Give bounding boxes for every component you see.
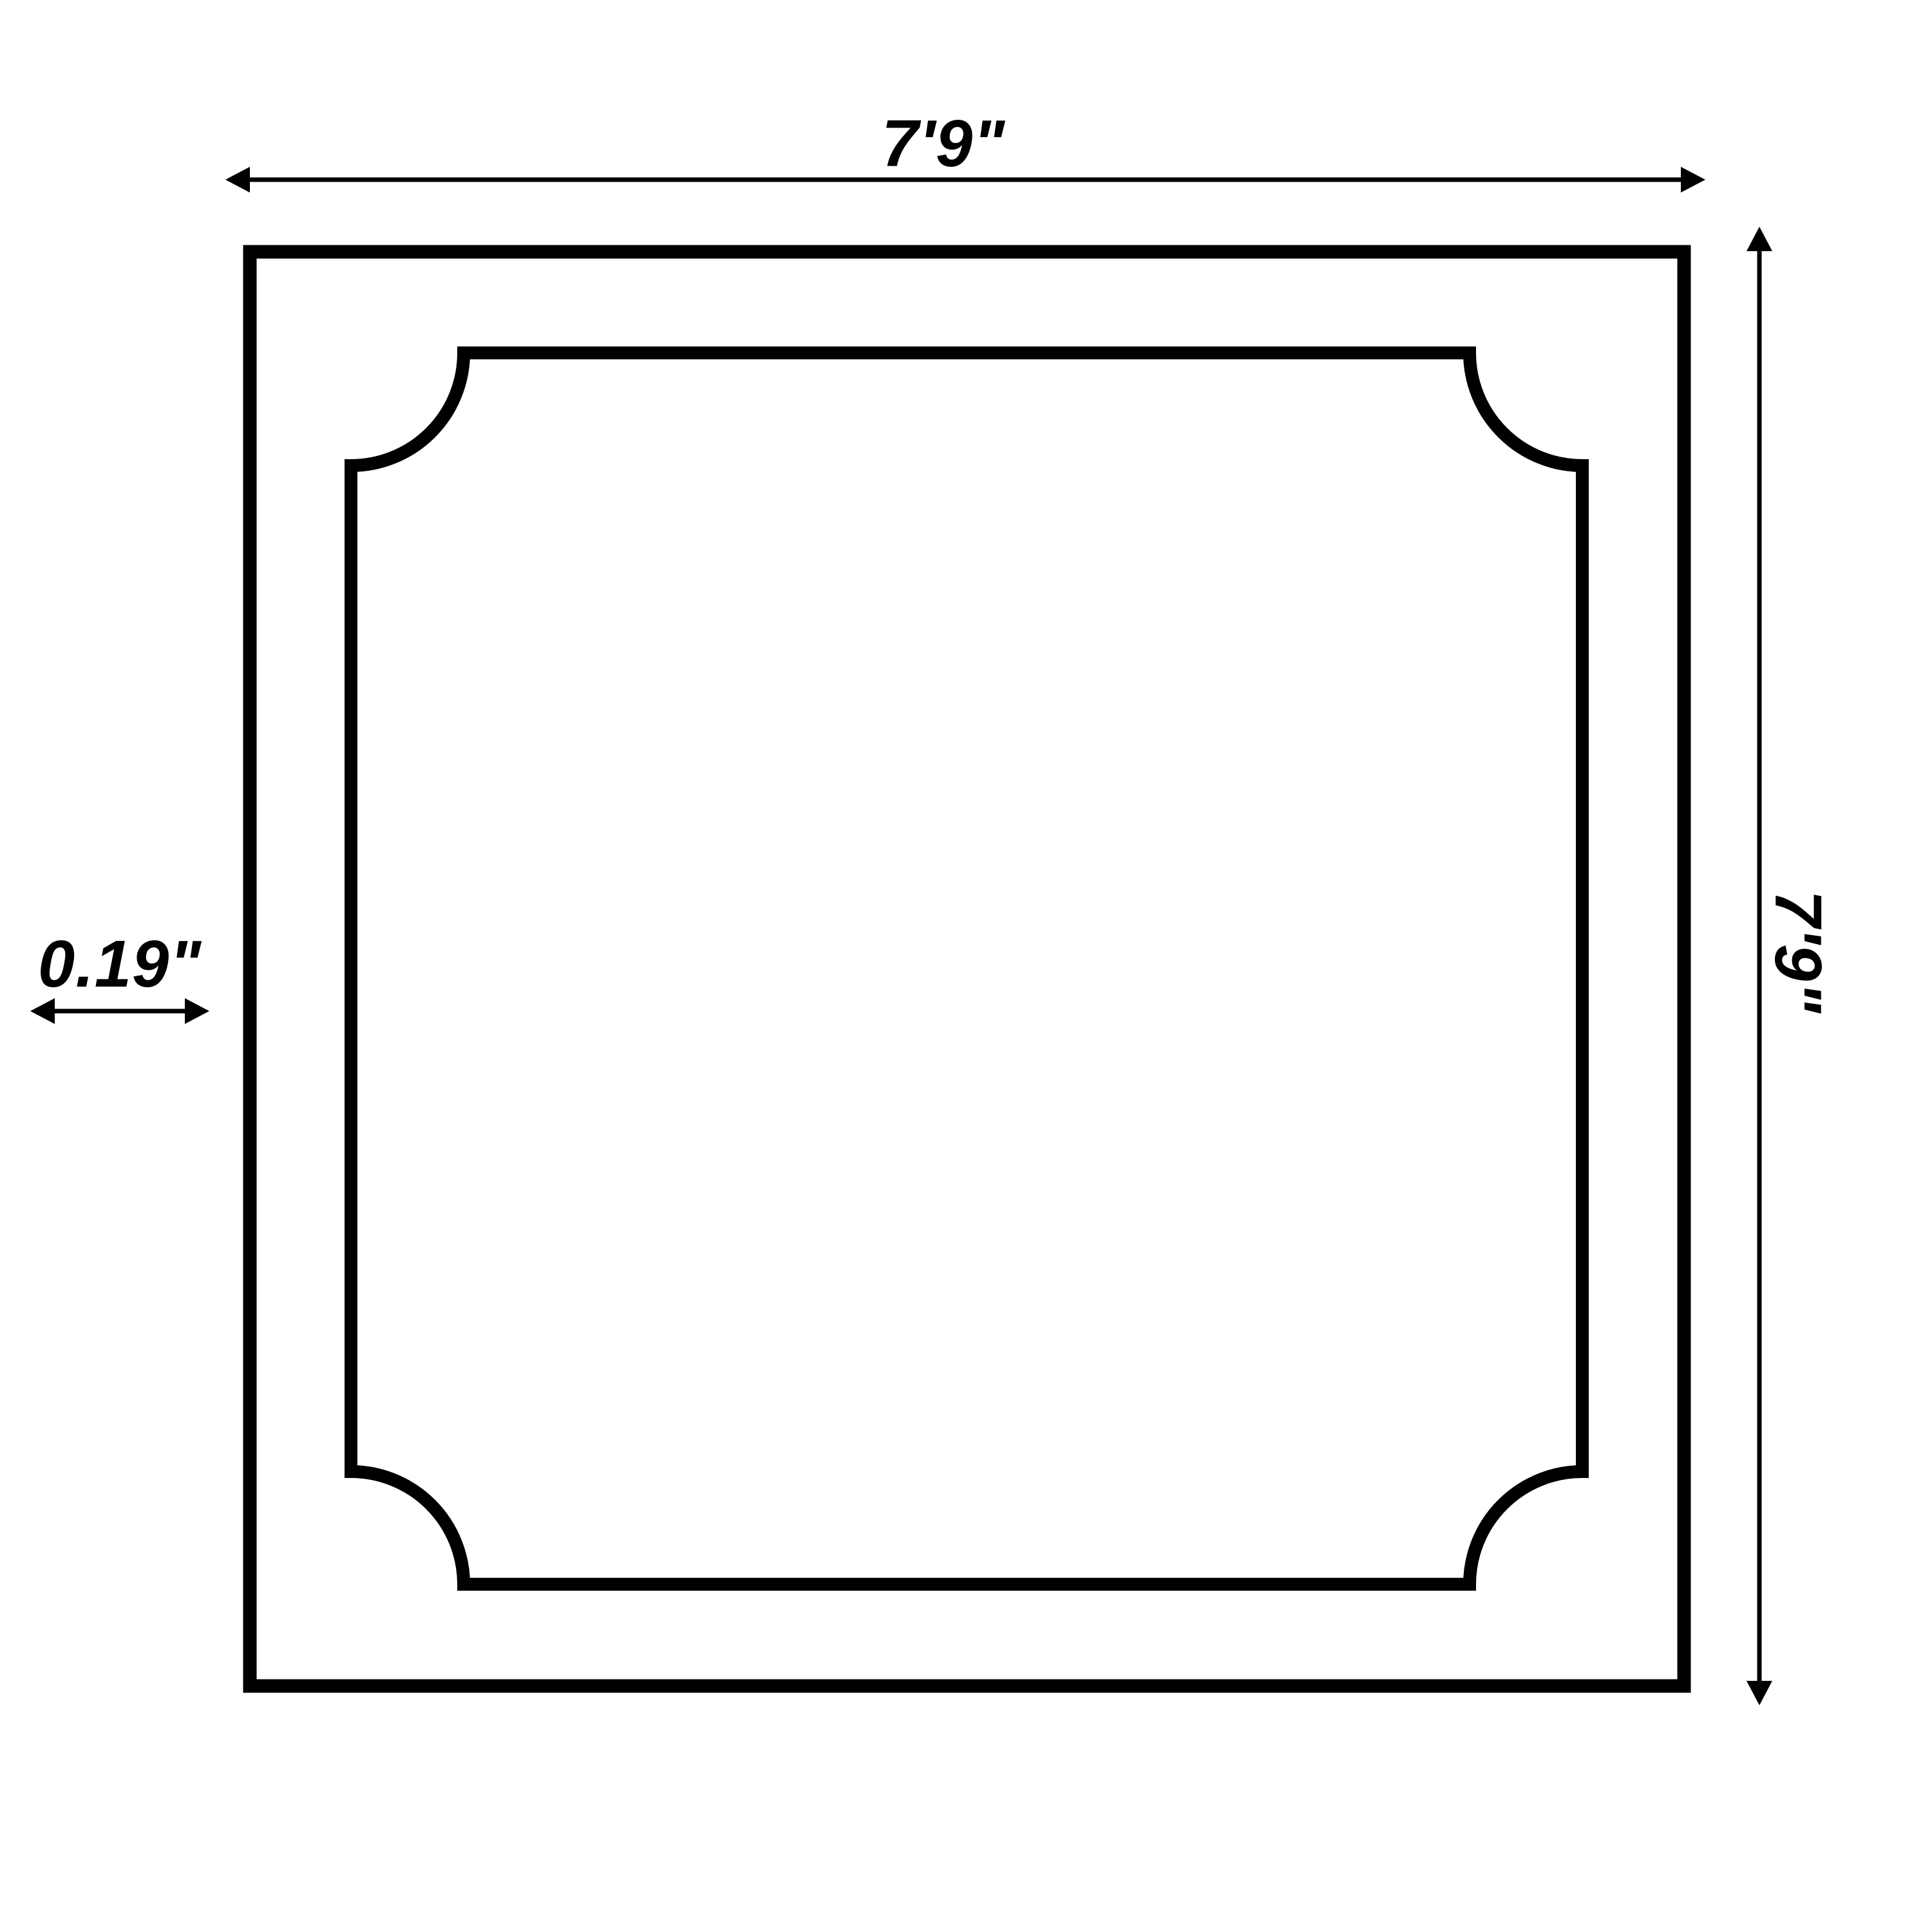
left-thickness-dimension: 0.19" [30,927,209,1024]
diagram-canvas: 7'9" 7'9" 0.19" [0,0,1932,1932]
top-width-label: 7'9" [882,106,1005,180]
panel-dimension-diagram: 7'9" 7'9" 0.19" [0,0,1932,1932]
diagram-background [0,0,1932,1932]
right-height-label: 7'9" [1761,890,1835,1014]
left-thickness-label: 0.19" [38,927,202,1001]
